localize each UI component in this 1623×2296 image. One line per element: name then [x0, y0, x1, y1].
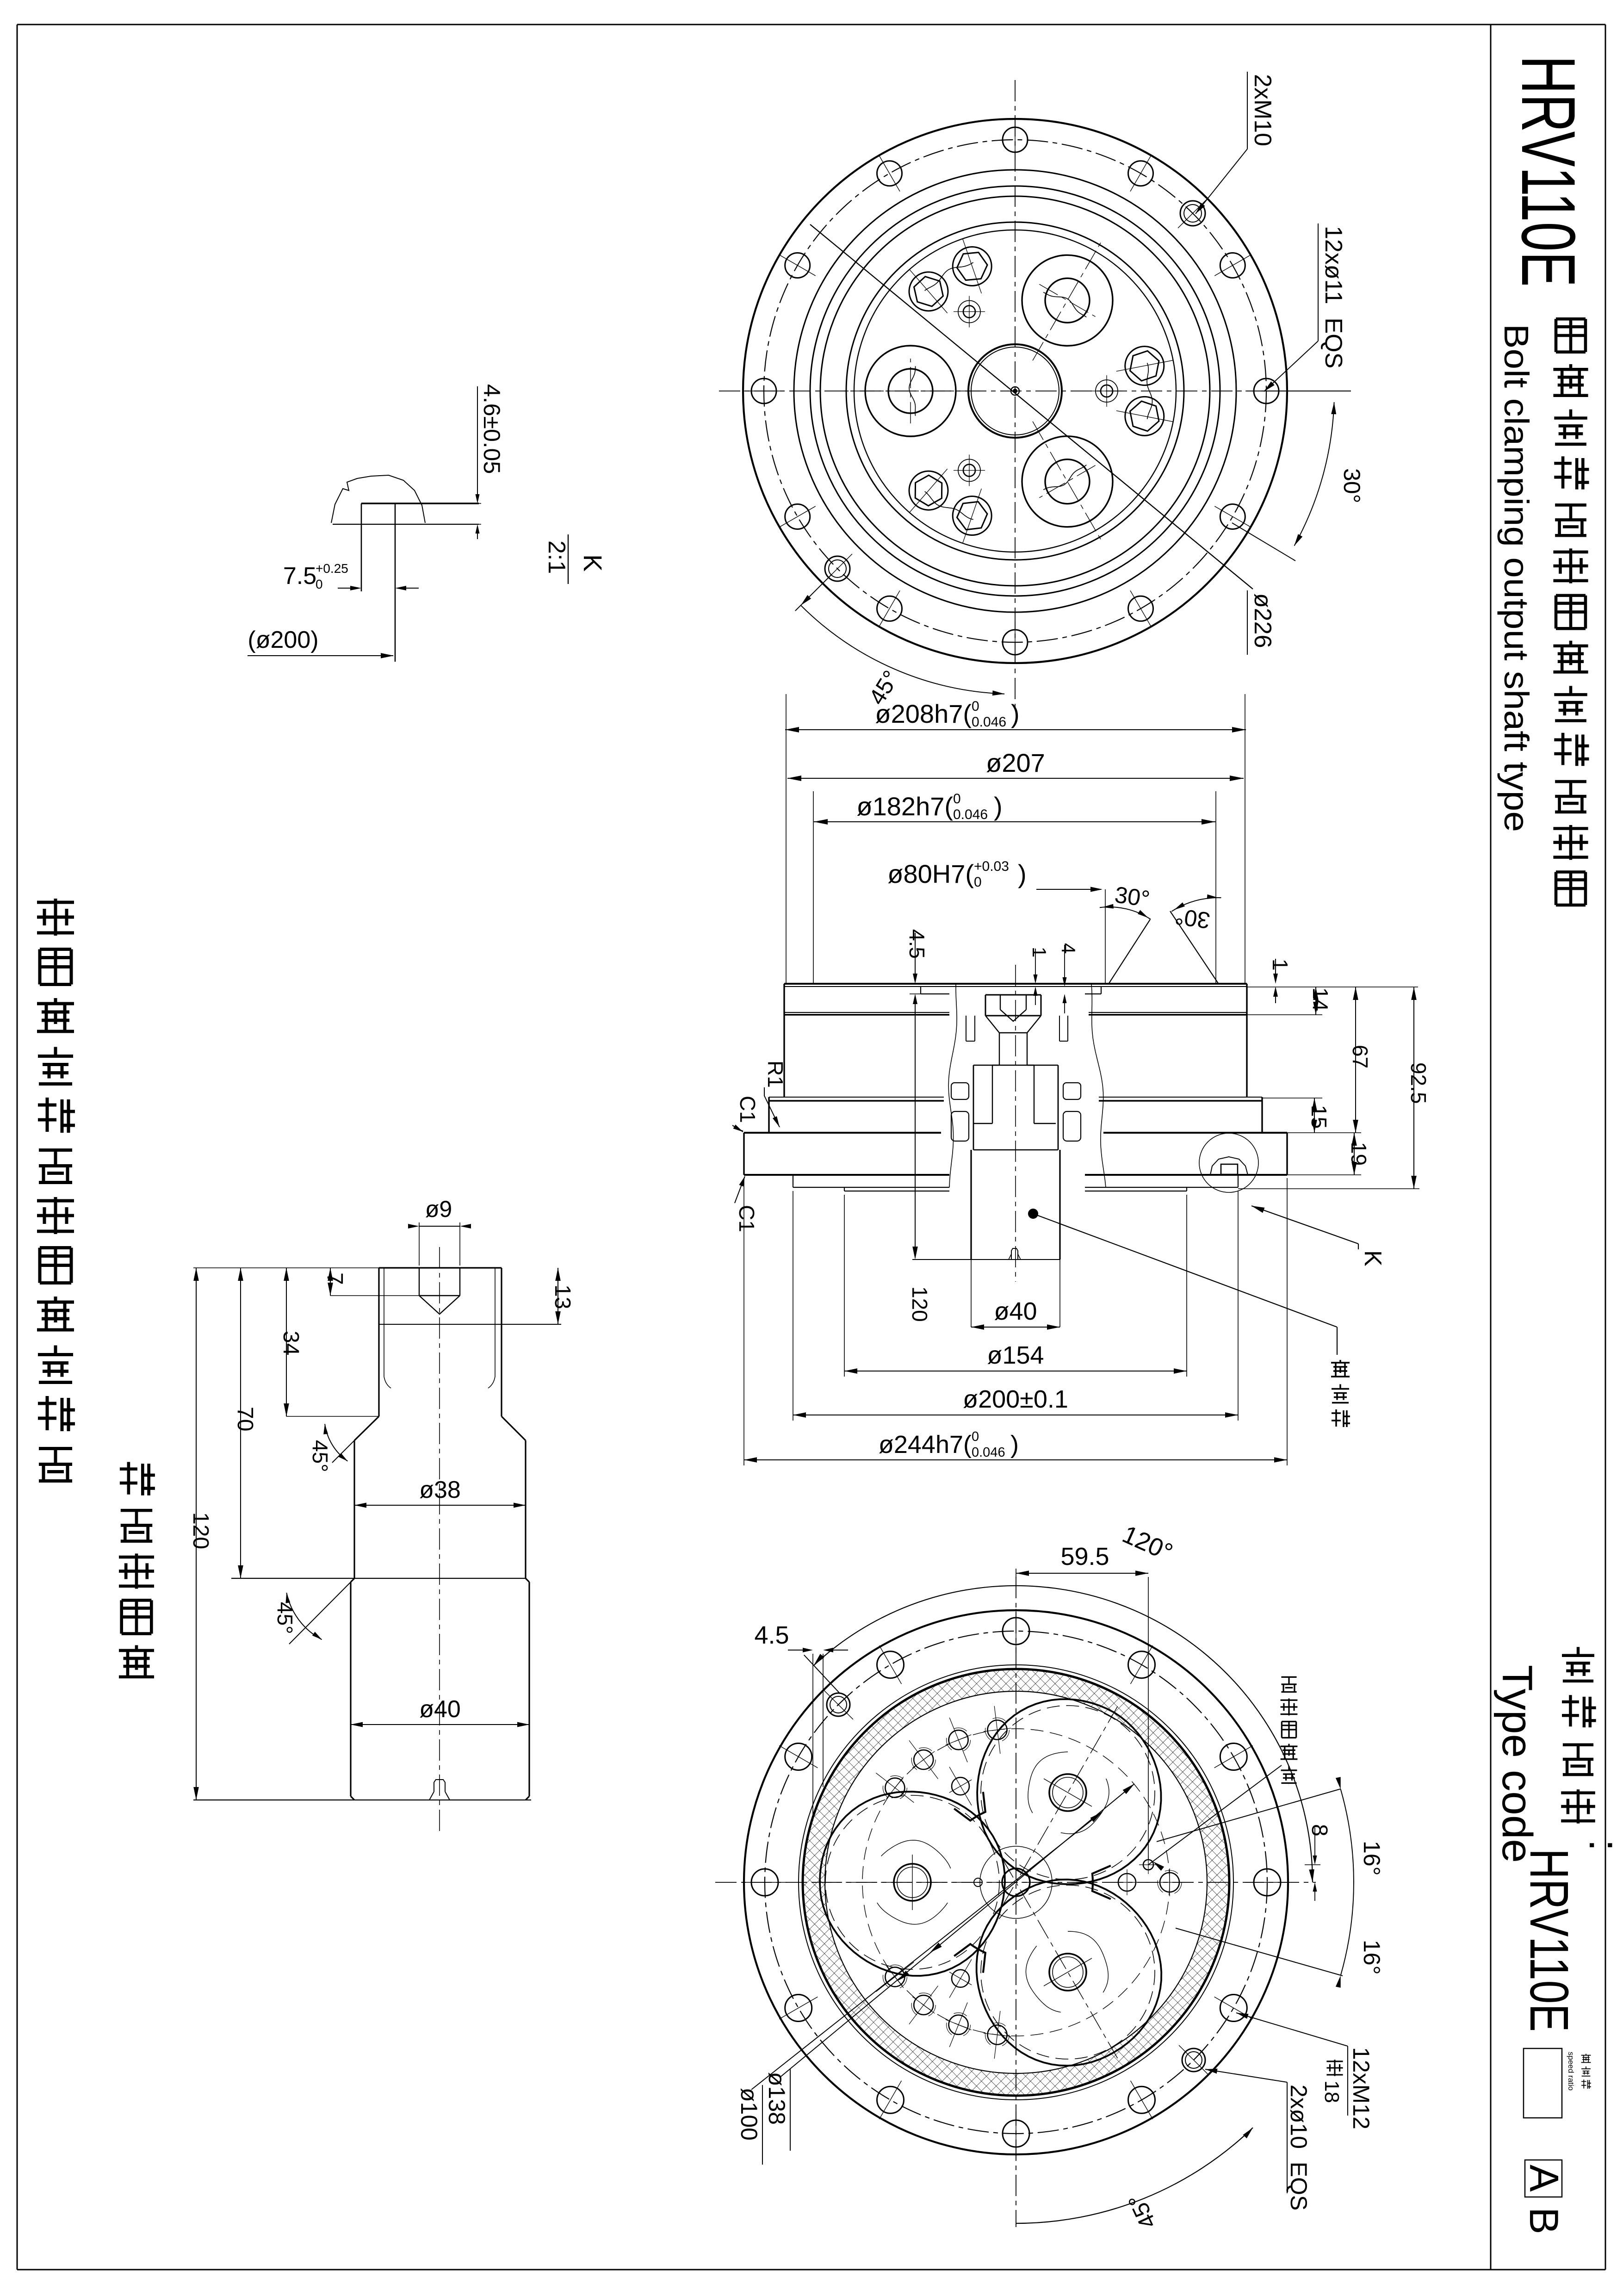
svg-text:0.046: 0.046 [972, 714, 1006, 730]
svg-text:34: 34 [279, 1331, 303, 1355]
svg-text:C1: C1 [735, 1205, 759, 1232]
svg-text:30°: 30° [1339, 468, 1365, 503]
svg-text:8: 8 [1307, 1824, 1332, 1837]
svg-text::: : [1580, 1839, 1623, 1851]
svg-text:R1: R1 [763, 1061, 787, 1088]
svg-text:19: 19 [1347, 1142, 1371, 1166]
svg-text:ø208h7(: ø208h7( [875, 699, 972, 728]
svg-text:45°: 45° [308, 1440, 332, 1472]
svg-text:4: 4 [1058, 943, 1079, 954]
svg-text:): ) [1018, 859, 1027, 888]
svg-text:16°: 16° [1359, 1841, 1385, 1876]
svg-text:(ø200): (ø200) [248, 627, 318, 653]
svg-text:): ) [994, 792, 1003, 821]
svg-text:+0.25: +0.25 [316, 561, 348, 576]
svg-text:4.5: 4.5 [905, 929, 929, 959]
svg-text:1: 1 [1028, 947, 1050, 957]
svg-text:ø182h7(: ø182h7( [856, 792, 953, 821]
svg-text:45°: 45° [273, 1602, 297, 1634]
svg-text:K: K [578, 554, 607, 571]
svg-text:2xø10 EQS: 2xø10 EQS [1286, 2085, 1312, 2210]
svg-text:HRV110E: HRV110E [1518, 1849, 1580, 2032]
svg-text:4.5: 4.5 [754, 1621, 789, 1649]
svg-text:): ) [1010, 1431, 1019, 1458]
svg-text:120: 120 [908, 1286, 932, 1322]
svg-text:0.046: 0.046 [972, 1445, 1005, 1460]
svg-text:ø154: ø154 [987, 1341, 1044, 1369]
svg-text:ø40: ø40 [419, 1696, 461, 1723]
svg-text:15: 15 [1307, 1105, 1331, 1129]
svg-text:67: 67 [1348, 1045, 1372, 1068]
svg-text:0: 0 [953, 791, 961, 807]
svg-text:A: A [1521, 2165, 1567, 2192]
svg-text:13: 13 [550, 1285, 575, 1309]
svg-text:16°: 16° [1359, 1940, 1385, 1975]
svg-text:4.6±0.05: 4.6±0.05 [479, 384, 505, 474]
svg-text:ø100: ø100 [736, 2088, 762, 2141]
svg-text:speed ratio: speed ratio [1567, 2052, 1575, 2091]
svg-text:12xø11 EQS: 12xø11 EQS [1320, 226, 1347, 368]
svg-text:18: 18 [1320, 2080, 1343, 2103]
svg-text:ø207: ø207 [986, 748, 1045, 777]
svg-text:ø9: ø9 [425, 1196, 452, 1222]
svg-text:14: 14 [1308, 987, 1332, 1011]
svg-text:0: 0 [972, 1429, 979, 1444]
svg-text:K: K [1359, 1250, 1386, 1266]
svg-text:HRV110E: HRV110E [1506, 56, 1591, 287]
svg-text:Bolt clamping output shaft typ: Bolt clamping output shaft type [1497, 324, 1536, 832]
svg-text:C1: C1 [736, 1096, 760, 1123]
svg-text:120: 120 [188, 1512, 213, 1549]
svg-text:ø38: ø38 [419, 1477, 461, 1503]
svg-text:+0.03: +0.03 [974, 859, 1009, 874]
svg-text:0: 0 [316, 577, 323, 591]
svg-text:2xM10: 2xM10 [1249, 74, 1276, 146]
svg-text:ø80H7(: ø80H7( [887, 859, 974, 888]
svg-text:ø200±0.1: ø200±0.1 [963, 1385, 1068, 1413]
svg-text:ø244h7(: ø244h7( [879, 1431, 972, 1458]
svg-text:): ) [1011, 699, 1020, 728]
svg-text:0: 0 [972, 699, 979, 714]
svg-text:B: B [1521, 2207, 1567, 2234]
svg-text:92.5: 92.5 [1406, 1062, 1431, 1104]
svg-text:7.5: 7.5 [283, 563, 316, 590]
svg-text:7: 7 [322, 1272, 347, 1285]
svg-text:12xM12: 12xM12 [1348, 2047, 1374, 2129]
svg-text:0: 0 [974, 875, 982, 890]
svg-text:2:1: 2:1 [543, 540, 570, 574]
svg-text:1: 1 [1268, 959, 1292, 971]
svg-text:ø226: ø226 [1249, 593, 1276, 648]
svg-text:Type code: Type code [1493, 1665, 1541, 1863]
svg-text:70: 70 [233, 1407, 257, 1431]
svg-text:59.5: 59.5 [1060, 1543, 1109, 1570]
svg-text:ø40: ø40 [994, 1297, 1037, 1325]
svg-text:ø138: ø138 [764, 2072, 790, 2125]
svg-text:0.046: 0.046 [953, 807, 988, 822]
